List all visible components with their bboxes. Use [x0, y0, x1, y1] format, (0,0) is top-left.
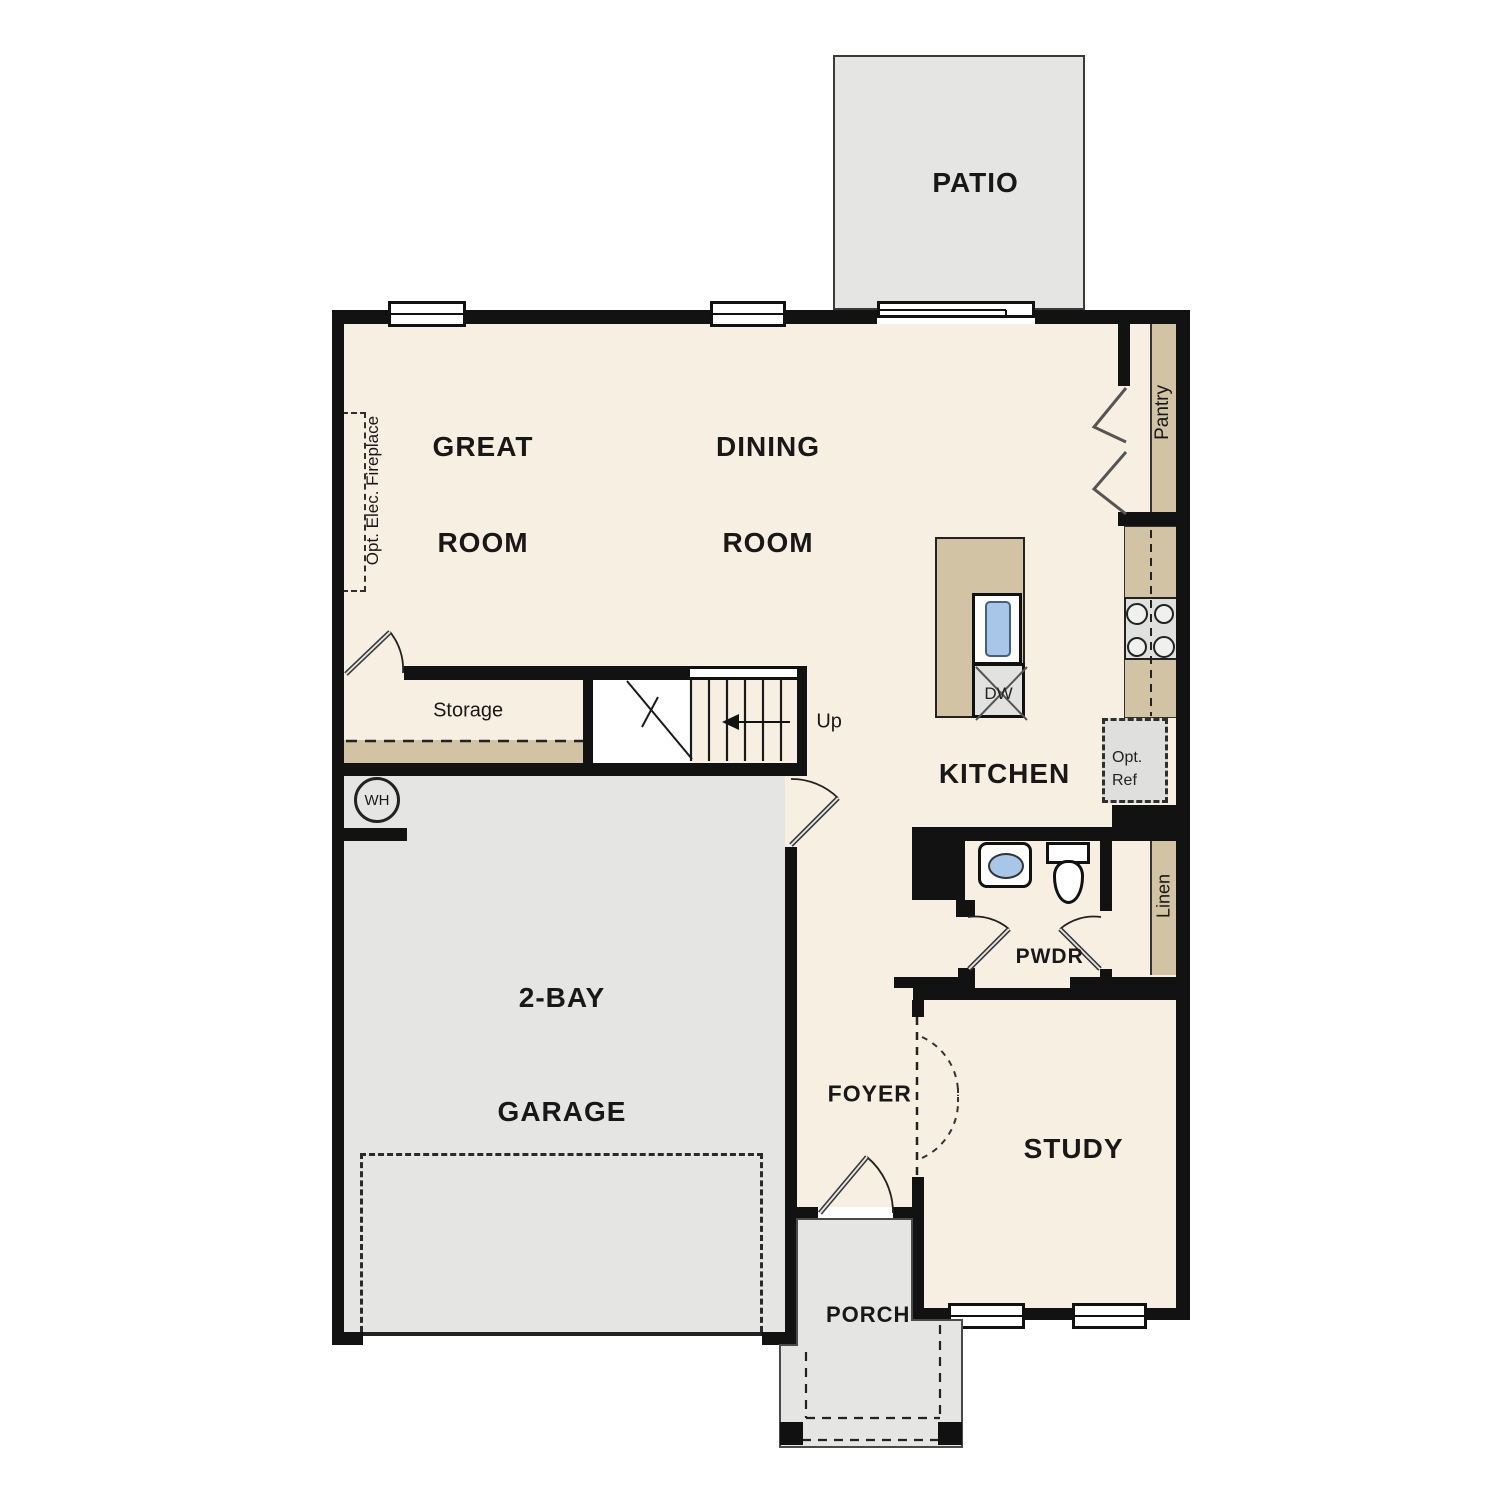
room-label-patio: PATIO [897, 135, 1019, 231]
up-arrow-head [722, 714, 739, 730]
label-pantry: Pantry [1130, 385, 1196, 461]
label-storage: Storage [411, 677, 503, 746]
french-door-arc-dashed [922, 1099, 958, 1158]
label-opt-fireplace: Opt. Elec. Fireplace [343, 416, 403, 584]
room-label-porch: PORCH [798, 1276, 911, 1354]
room-label-kitchen: KITCHEN [904, 726, 1071, 822]
room-label-foyer: FOYER [798, 1054, 912, 1135]
door-leaf-inner [820, 1157, 867, 1213]
label-up: Up [794, 688, 842, 757]
porch-post [780, 1422, 803, 1445]
room-label-dining-room: DINING ROOM [716, 367, 820, 623]
bifold-door [1094, 452, 1126, 514]
linework-overlay [0, 0, 1500, 1500]
room-label-study: STUDY [988, 1101, 1123, 1197]
door-arc [867, 1157, 893, 1213]
stairs [627, 680, 790, 761]
door-arc [390, 632, 403, 673]
porch-post [938, 1422, 962, 1445]
room-label-powder: PWDR [988, 921, 1084, 993]
label-opt-ref: Opt. Ref [1112, 746, 1142, 792]
label-linen: Linen [1133, 874, 1196, 938]
slider-panel-line [877, 310, 1006, 316]
floor-plan: DW WH [0, 0, 1500, 1500]
room-label-garage: 2-BAY GARAGE [498, 903, 627, 1207]
room-label-great-room: GREAT ROOM [433, 367, 534, 623]
french-door-arc-dashed [922, 1037, 958, 1096]
stair-diagonal [627, 681, 692, 759]
bifold-door [1094, 388, 1126, 442]
door-leaf-inner [791, 798, 838, 845]
door-leaf-inner [346, 632, 390, 674]
door-arc [791, 779, 838, 798]
